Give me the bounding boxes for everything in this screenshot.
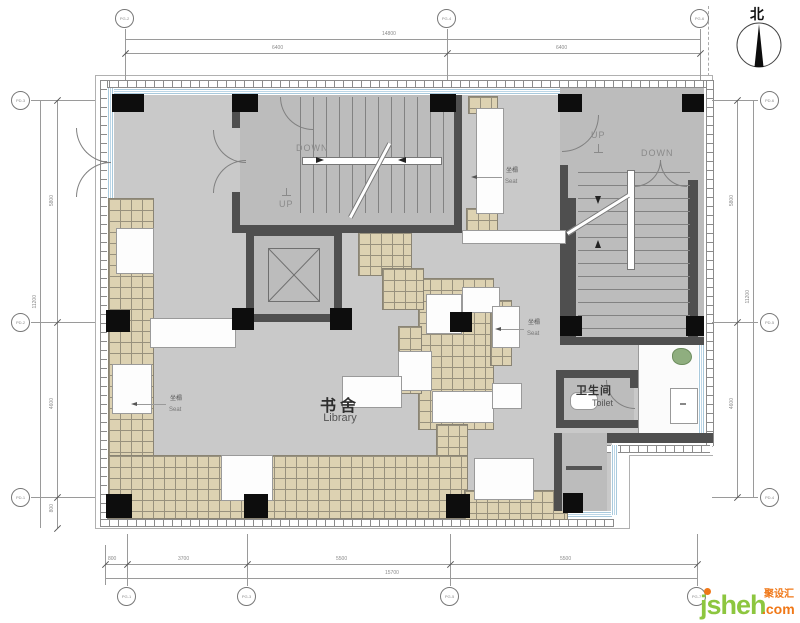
stair1-arrow-left-icon — [398, 157, 406, 163]
entry-door-arc-upper-icon — [76, 128, 111, 163]
column — [563, 493, 583, 513]
counter-center — [462, 230, 566, 244]
watermark-brand: jsheh — [700, 592, 766, 618]
column — [450, 312, 472, 332]
dim-stem — [697, 534, 698, 586]
dim-tick — [54, 525, 61, 532]
curtainwall-mullions-southeast — [602, 445, 710, 453]
dim-line-right-overall — [753, 100, 754, 497]
east-corridor-edge — [638, 345, 639, 433]
bench-north — [476, 108, 504, 214]
column — [686, 316, 704, 336]
dim-line-left-overall — [40, 100, 41, 528]
curtainwall-mullions-bottom — [100, 519, 614, 527]
outline-bottom — [95, 528, 630, 529]
column — [430, 94, 456, 112]
dim-line-top-segments — [125, 53, 700, 54]
dim-bottom-seg3: 5500 — [336, 557, 347, 562]
column — [232, 308, 254, 330]
seat1-label-cn: 坐榻 — [506, 168, 518, 174]
toilet-label-cn: 卫生间 — [576, 382, 612, 398]
dim-right-overall: 11200 — [746, 290, 751, 304]
tile-step-b — [382, 268, 424, 310]
grid-bubble-right-1: PD-6 — [760, 91, 779, 110]
dim-stem — [450, 534, 451, 586]
grid-bubble-left-1: PD-3 — [11, 91, 30, 110]
column — [560, 316, 582, 336]
seat2-leader-arrow-icon — [495, 327, 501, 331]
column — [106, 310, 130, 332]
dim-stem — [127, 534, 128, 586]
stair1-down-label: DOWN — [296, 144, 329, 153]
column — [244, 494, 268, 518]
dim-left-seg2: 4600 — [50, 398, 55, 409]
grid-bubble-left-2: PD-2 — [11, 313, 30, 332]
stair1-up-label: UP — [279, 200, 294, 209]
column — [446, 494, 470, 518]
column — [106, 494, 132, 518]
dim-right-seg2: 4600 — [730, 398, 735, 409]
dim-bottom-seg4: 5500 — [560, 557, 571, 562]
dim-top-seg1: 6400 — [272, 46, 283, 51]
south-corridor-wall — [554, 433, 562, 511]
stair1-wall-east — [454, 95, 462, 233]
dim-left-overall: 11200 — [33, 295, 38, 309]
grid-bubble-top-2: PG-4 — [437, 9, 456, 28]
grid-bubble-right-2: PD-5 — [760, 313, 779, 332]
table-west-lower — [112, 364, 152, 414]
table-cluster-f — [492, 383, 522, 409]
grid-bubble-top-3: PG-6 — [690, 9, 709, 28]
curtainwall-mullions-right — [706, 80, 714, 446]
grid-bubble-bottom-3: PG-5 — [440, 587, 459, 606]
floor-plan-sheet: 北 DOWN UP — [0, 0, 800, 623]
tile-bench-south — [108, 455, 468, 519]
seat3-label-en: Seat — [169, 407, 181, 413]
seat3-label-cn: 坐榻 — [170, 396, 182, 402]
table-cluster-e — [432, 391, 494, 423]
watermark-suffix: .com — [762, 603, 795, 616]
grid-bubble-bottom-1: PG-1 — [117, 587, 136, 606]
seat1-label-en: Seat — [505, 179, 517, 185]
dim-stem — [31, 497, 95, 498]
dim-left-seg3: 800 — [50, 504, 55, 512]
outline-notch-h — [629, 455, 713, 456]
toilet-wall-north — [556, 370, 638, 378]
watermark-cn: 聚设汇 — [764, 590, 794, 600]
dim-line-left-segments — [57, 100, 58, 528]
seat2-label-cn: 坐榻 — [528, 320, 540, 326]
elevator-car-icon — [268, 248, 320, 302]
south-corridor-rail — [566, 466, 602, 470]
grid-bubble-bottom-2: PG-3 — [237, 587, 256, 606]
dim-line-bottom-segments — [105, 564, 697, 565]
dim-stem — [247, 534, 248, 586]
dim-stem — [31, 100, 95, 101]
wall-southeast — [598, 433, 713, 443]
table-cluster-d — [398, 351, 432, 391]
column — [112, 94, 144, 112]
bench-mid-west — [150, 318, 236, 348]
stair2-arrow-up-icon — [595, 240, 601, 248]
stair2-down-label: DOWN — [641, 149, 674, 158]
plant-icon — [672, 348, 692, 365]
stair1-up-symbol-base — [282, 195, 291, 196]
seat1-leader-arrow-icon — [471, 175, 477, 179]
sink-icon — [670, 388, 698, 424]
stair2-up-symbol — [598, 144, 599, 152]
seat2-label-en: Seat — [527, 331, 539, 337]
outline-notch-v — [629, 455, 630, 529]
column — [330, 308, 352, 330]
seat2-leader-line — [500, 329, 524, 330]
stair2-arrow-down-icon — [595, 196, 601, 204]
seat3-leader-arrow-icon — [131, 402, 137, 406]
grid-bubble-right-3: PD-4 — [760, 488, 779, 507]
dim-right-seg1: 5800 — [730, 195, 735, 206]
curtainwall-mullions-top — [100, 80, 706, 88]
dim-top-overall: 14800 — [382, 32, 396, 37]
stair1-treads — [300, 97, 454, 213]
entry-door-arc-lower-icon — [76, 162, 111, 197]
column — [232, 94, 258, 112]
dim-stem — [31, 322, 95, 323]
dim-left-seg1: 5800 — [50, 195, 55, 206]
tile-platform-center-tail — [436, 424, 468, 456]
seat1-leader-line — [476, 177, 502, 178]
dim-bottom-seg2: 3700 — [178, 557, 189, 562]
north-arrow-icon — [735, 21, 783, 69]
table-west-upper — [116, 228, 154, 274]
dim-line-bottom-overall — [105, 578, 697, 579]
dim-line-right-segments — [737, 100, 738, 497]
stair2-wall-south — [560, 337, 704, 345]
seat3-leader-line — [136, 404, 166, 405]
stair1-wall-west-upper — [232, 112, 240, 128]
curtainwall-glazing-corridor — [611, 445, 618, 515]
dim-top-seg2: 6400 — [556, 46, 567, 51]
library-label-en: Library — [305, 412, 375, 424]
outline-top — [95, 75, 713, 76]
stair1-arrow-right-icon — [316, 157, 324, 163]
column — [558, 94, 582, 112]
grid-bubble-top-1: PG-2 — [115, 9, 134, 28]
table-south-right — [474, 458, 534, 500]
toilet-wall-south — [556, 420, 638, 428]
sink-tap-icon — [680, 403, 686, 405]
grid-bubble-left-3: PD-1 — [11, 488, 30, 507]
stair2-up-symbol-base — [594, 152, 603, 153]
toilet-label-en: Toilet — [592, 398, 613, 408]
column — [682, 94, 704, 112]
dim-bottom-overall: 15700 — [385, 571, 399, 576]
dim-line-top-overall — [125, 39, 700, 40]
